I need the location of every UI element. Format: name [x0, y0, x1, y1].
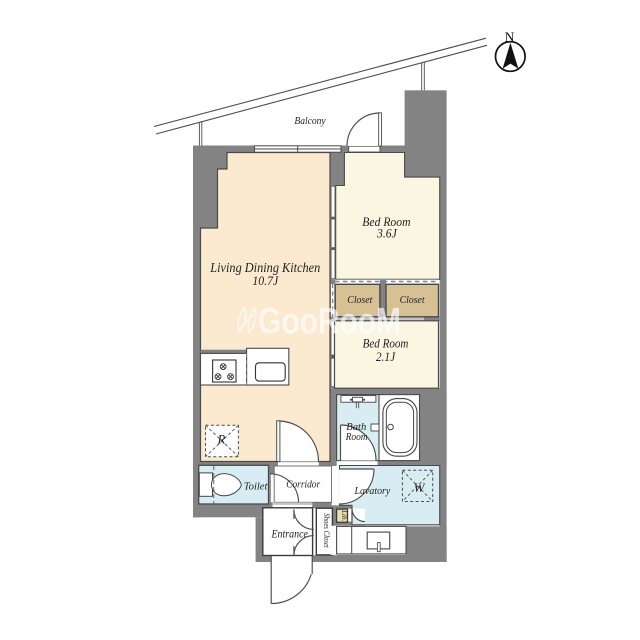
- svg-text:R: R: [217, 432, 226, 446]
- svg-text:Lib.: Lib.: [340, 509, 348, 521]
- svg-text:Toilet: Toilet: [244, 480, 269, 492]
- svg-text:Entrance: Entrance: [271, 529, 308, 541]
- svg-text:3.6J: 3.6J: [376, 226, 398, 240]
- svg-text:Closet: Closet: [400, 295, 426, 306]
- svg-text:Closet: Closet: [347, 295, 373, 306]
- svg-text:N: N: [505, 30, 515, 45]
- svg-text:2.1J: 2.1J: [376, 350, 397, 364]
- svg-text:Bed Room: Bed Room: [363, 336, 409, 351]
- svg-text:Lavatory: Lavatory: [354, 485, 391, 497]
- svg-text:Corridor: Corridor: [286, 479, 321, 491]
- svg-text:10.7J: 10.7J: [252, 273, 279, 288]
- svg-text:Shoes Closet: Shoes Closet: [322, 513, 331, 548]
- svg-text:W: W: [414, 480, 426, 495]
- svg-text:Balcony: Balcony: [294, 116, 326, 127]
- svg-text:Room: Room: [345, 431, 368, 443]
